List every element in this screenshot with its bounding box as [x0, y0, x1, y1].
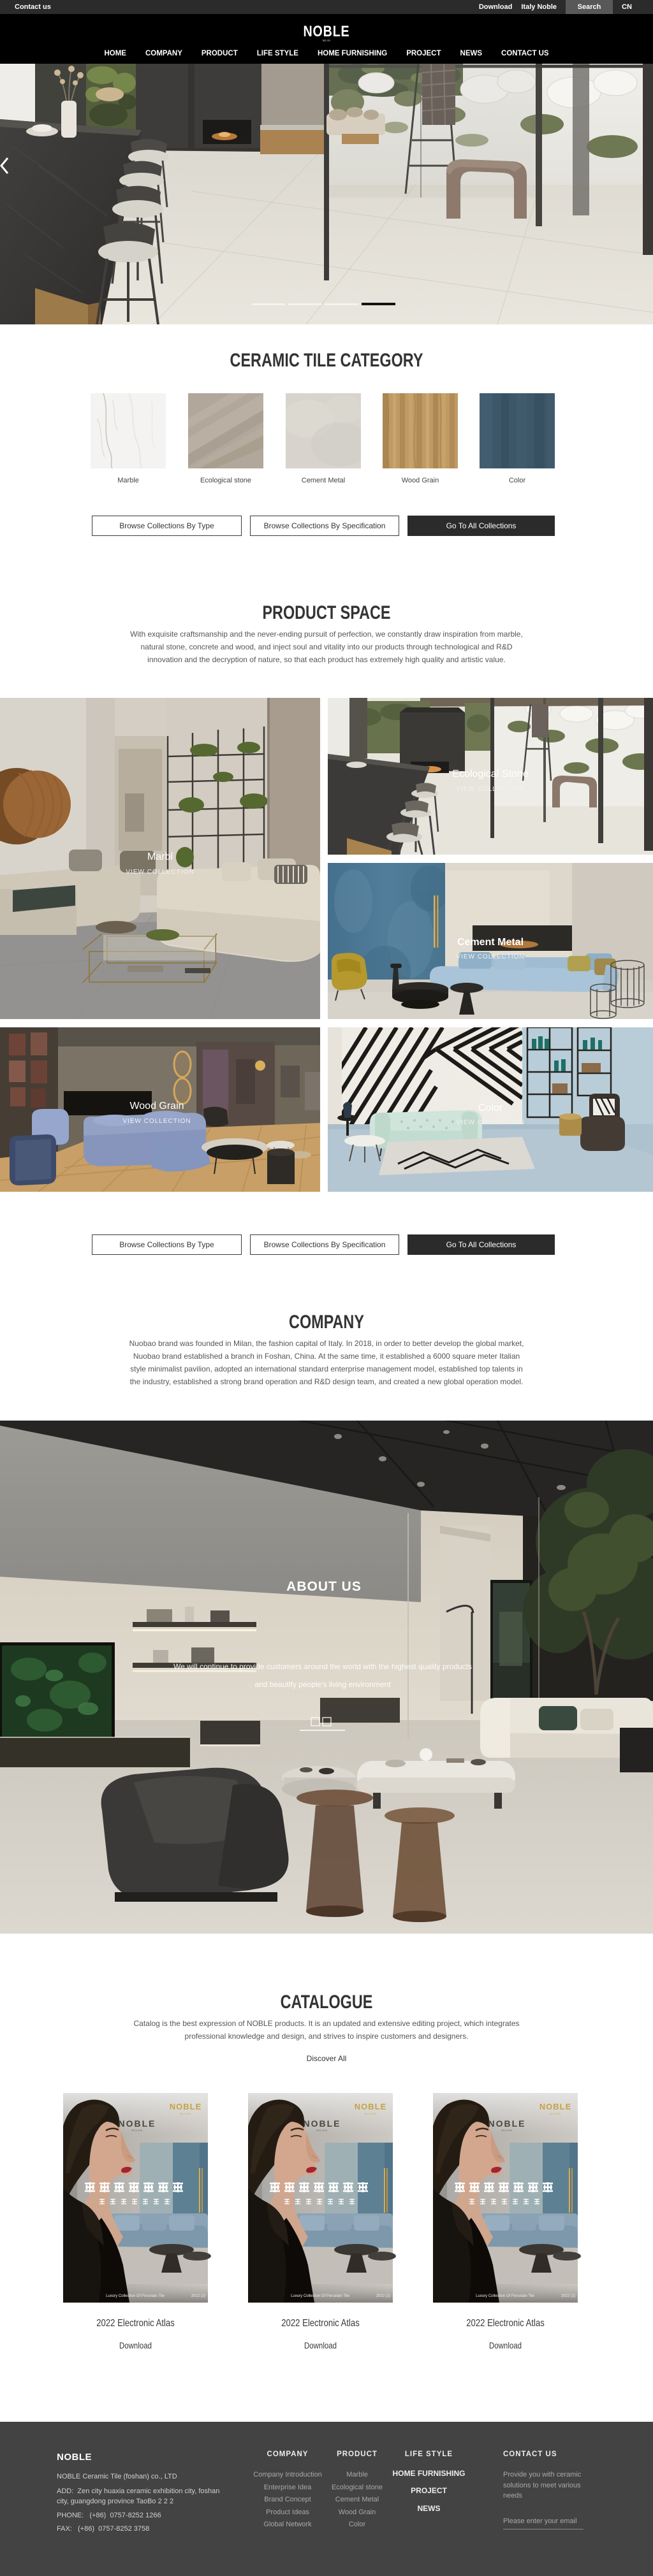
svg-text:Ecological Stone: Ecological Stone [452, 769, 528, 779]
svg-text:Color: Color [478, 1103, 503, 1113]
svg-text:VIEW COLLECTION: VIEW COLLECTION [126, 869, 194, 876]
svg-text:We will continue to provide cu: We will continue to provide customers ar… [173, 1662, 472, 1671]
svg-text:VIEW COLLECTION: VIEW COLLECTION [122, 1118, 191, 1125]
svg-text:Wood Grain: Wood Grain [129, 1101, 184, 1111]
svg-text:ABOUT US: ABOUT US [286, 1579, 362, 1594]
svg-text:Marbl: Marbl [147, 851, 173, 862]
svg-text:VIEW COLLECTION: VIEW COLLECTION [456, 1119, 524, 1126]
svg-text:VIEW COLLECTION: VIEW COLLECTION [456, 786, 524, 793]
svg-text:Cement Metal: Cement Metal [457, 937, 524, 948]
svg-text:VIEW COLLECTION: VIEW COLLECTION [456, 953, 524, 960]
svg-text:and beautify people's living e: and beautify people's living environment [254, 1680, 391, 1689]
